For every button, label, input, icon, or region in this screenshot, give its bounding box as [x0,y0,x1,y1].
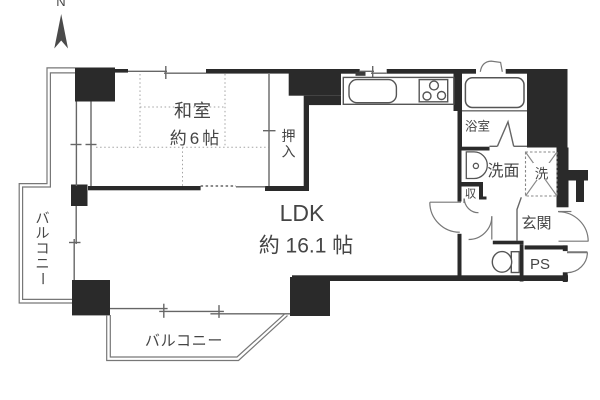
svg-text:バルコニー: バルコニー [145,333,223,350]
svg-text:玄関: 玄関 [521,215,551,232]
svg-text:洗: 洗 [535,167,549,182]
svg-text:ル: ル [36,225,50,241]
svg-text:コ: コ [36,240,50,256]
svg-text:約 16.1 帖: 約 16.1 帖 [259,235,354,258]
svg-text:和室: 和室 [174,101,212,121]
svg-text:N: N [56,0,65,9]
svg-text:約6帖: 約6帖 [170,129,222,148]
svg-text:洗面: 洗面 [487,162,519,180]
svg-text:LDK: LDK [280,200,325,226]
svg-text:浴室: 浴室 [465,119,490,134]
svg-text:バ: バ [36,210,50,226]
svg-text:ニ: ニ [36,256,50,272]
svg-text:ー: ー [35,272,51,286]
svg-text:PS: PS [530,256,550,273]
svg-text:押: 押 [282,128,296,144]
svg-text:入: 入 [282,144,296,160]
svg-text:収: 収 [465,188,477,201]
